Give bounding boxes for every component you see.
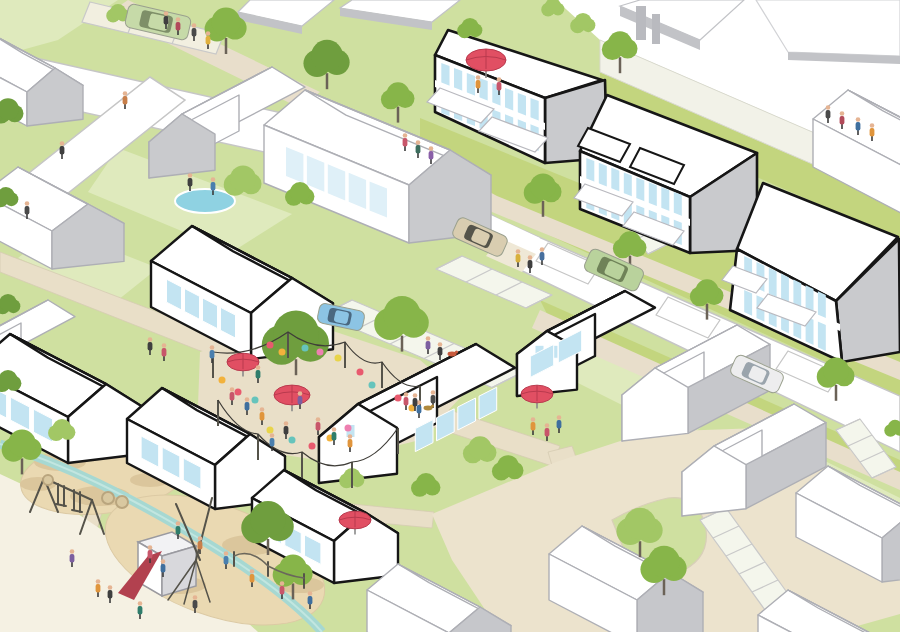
lantern bbox=[279, 349, 286, 356]
lantern bbox=[357, 369, 364, 376]
lantern bbox=[267, 427, 274, 434]
lantern bbox=[302, 345, 309, 352]
lantern bbox=[289, 437, 296, 444]
lantern bbox=[235, 389, 242, 396]
lantern bbox=[252, 397, 259, 404]
lantern bbox=[219, 377, 226, 384]
lantern bbox=[395, 395, 402, 402]
lantern bbox=[317, 349, 324, 356]
lantern bbox=[335, 355, 342, 362]
lantern bbox=[345, 425, 352, 432]
pond bbox=[175, 189, 235, 213]
neighborhood-illustration bbox=[0, 0, 900, 632]
isometric-map bbox=[0, 0, 900, 632]
lantern bbox=[369, 382, 376, 389]
lantern bbox=[267, 342, 274, 349]
lantern bbox=[309, 443, 316, 450]
